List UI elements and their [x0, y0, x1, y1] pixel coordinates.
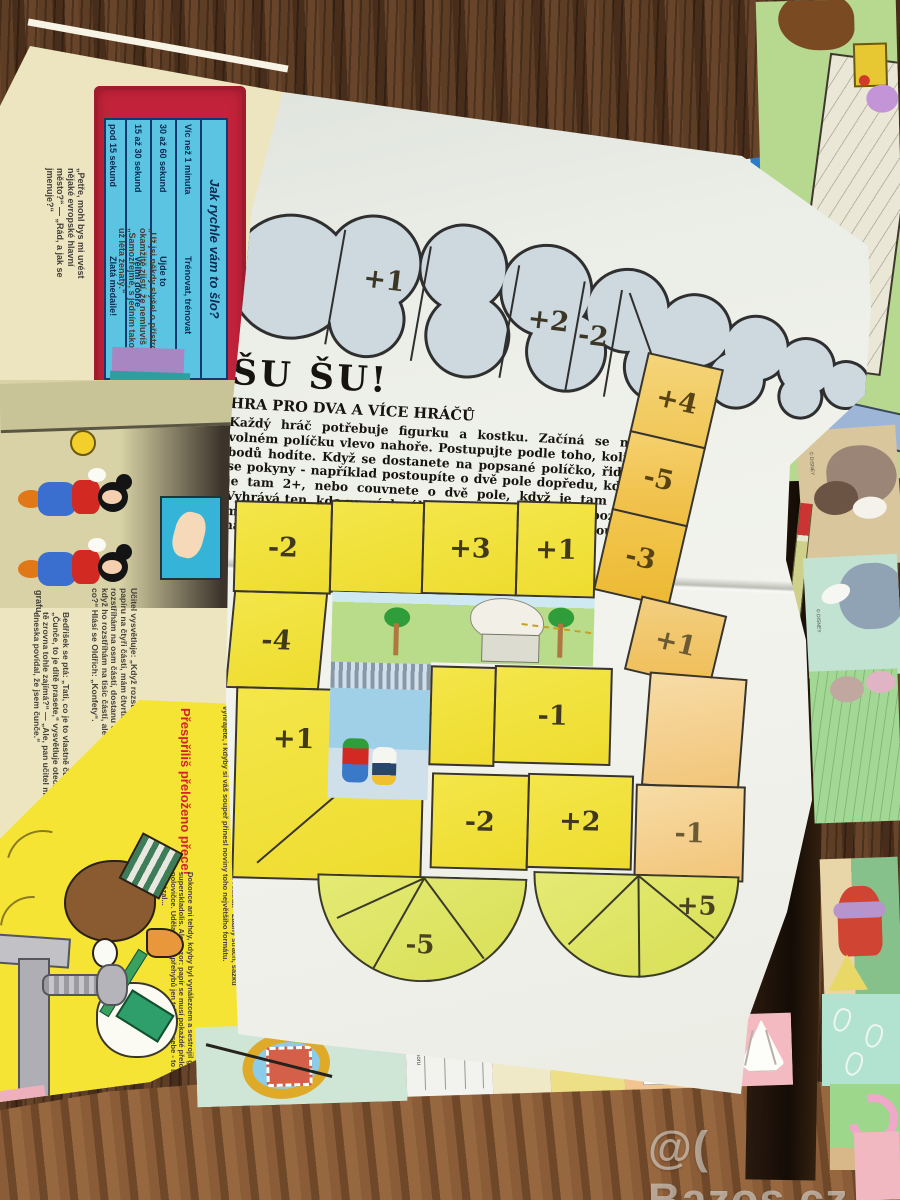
press-knob-art	[96, 964, 128, 1006]
goofy-figure	[342, 738, 369, 783]
arm-art	[169, 509, 210, 561]
comic-page-green-bull	[809, 669, 900, 824]
photo-of-magazine: © DISNEY © DISNEY nesmí minci dotknout.	[0, 0, 900, 1200]
board-cell: -2	[233, 500, 333, 595]
board-cell-label: +1	[273, 723, 315, 755]
pedestal-art	[481, 634, 540, 664]
mickey-ear	[116, 474, 132, 490]
comic-page-hydrant	[820, 857, 900, 998]
mickey-ear	[116, 544, 132, 560]
speed-table-title: Jak rychle vám to šlo?	[200, 120, 226, 378]
board-cell: -4	[225, 590, 328, 690]
disney-mark: © DISNEY	[808, 452, 816, 476]
mickey-legs	[38, 482, 76, 516]
fan-right: +5	[531, 871, 740, 980]
speed-table-cell-time: Víc než 1 minuta	[184, 120, 194, 256]
table-edge-art	[0, 380, 240, 433]
wolf-snout-art	[813, 479, 859, 516]
scene-crowd-dots	[330, 662, 431, 691]
pink-patch-art	[865, 671, 896, 694]
mickey-shirt	[72, 480, 100, 514]
watermark: @( Bazos.cz	[648, 1122, 900, 1200]
board-cell: -1	[633, 784, 745, 883]
hoof-art	[830, 676, 865, 703]
raindrop-art	[830, 1006, 853, 1034]
yellow-wedge-art	[827, 954, 868, 991]
comic-page-teal-character: © DISNEY	[803, 554, 900, 679]
comic-page-rain	[822, 994, 900, 1086]
fan-wedge-line	[568, 875, 639, 945]
mickey-glove	[88, 468, 106, 482]
joke-city-text: „Petře, mohl bys mi uvést nějaké evropsk…	[28, 168, 86, 292]
donald-figure	[372, 747, 397, 786]
mickey-face	[102, 490, 122, 504]
board-cell: -1	[492, 665, 613, 766]
fan-left: -5	[315, 873, 528, 984]
board-cell	[428, 665, 497, 767]
speed-table-cell-verdict: Trénovat, trénovat	[184, 256, 194, 378]
mickey-face	[102, 560, 122, 574]
yellow-ball-art	[70, 430, 96, 456]
palm-trunk-art	[393, 623, 399, 655]
mickey-figure	[18, 472, 138, 530]
raindrop-art	[842, 1050, 865, 1078]
wolf-claw-art	[852, 495, 887, 519]
mickey-glove	[88, 538, 106, 552]
fan-label: -5	[405, 930, 435, 961]
fan-wedge-line	[637, 876, 640, 978]
board-cell: +3	[421, 500, 519, 596]
hydrant-art	[837, 885, 883, 956]
mickey-comic-panel	[0, 380, 240, 608]
disney-mark: © DISNEY	[814, 609, 821, 633]
hydrant-band-art	[833, 901, 886, 919]
comic-page-tan-wolf: © DISNEY	[795, 425, 900, 570]
board-cell: +2	[526, 773, 634, 871]
mickey-shirt	[72, 550, 100, 584]
board-cell	[641, 672, 748, 793]
statue-scene-band	[331, 592, 595, 667]
board-cell	[329, 500, 425, 595]
speed-table-row: Víc než 1 minuta Trénovat, trénovat	[175, 120, 200, 378]
speed-table-cell-time: 30 až 60 sekund	[159, 120, 169, 256]
blue-inset-panel	[160, 496, 222, 580]
raindrop-art	[862, 1022, 885, 1050]
board-cell: +1	[515, 500, 597, 598]
joke-city-wrap: „Petře, mohl bys mi uvést nějaké evropsk…	[28, 168, 86, 292]
mickey-legs	[38, 552, 76, 586]
fan-label: +5	[676, 891, 717, 922]
board-cell: -2	[430, 772, 530, 871]
dog-paw-art	[778, 0, 855, 51]
